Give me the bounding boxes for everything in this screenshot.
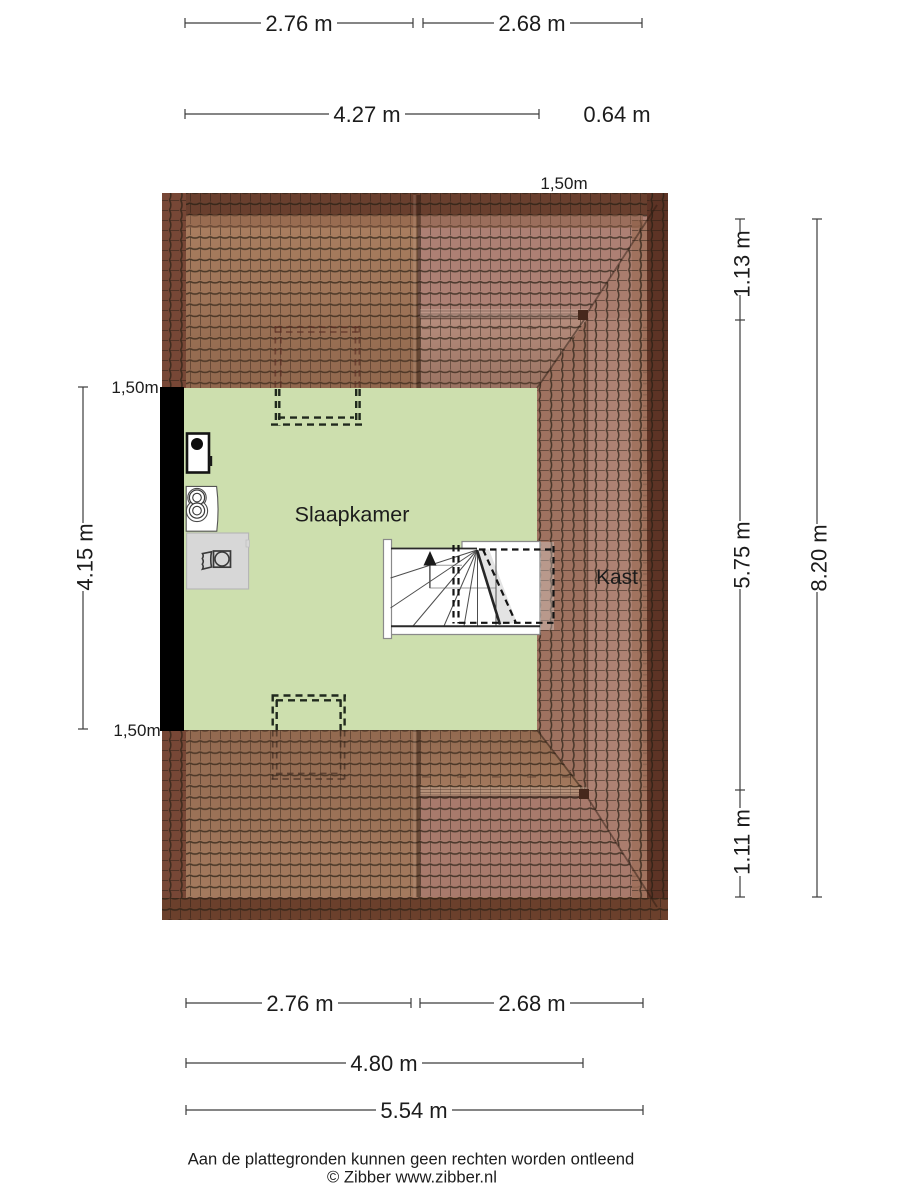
svg-text:8.20 m: 8.20 m	[807, 524, 832, 591]
svg-text:4.27 m: 4.27 m	[333, 102, 400, 127]
svg-text:1,50m: 1,50m	[111, 378, 158, 397]
svg-text:2.68 m: 2.68 m	[498, 11, 565, 36]
svg-text:5.54 m: 5.54 m	[380, 1098, 447, 1123]
svg-text:4.15 m: 4.15 m	[73, 523, 98, 590]
svg-text:1.13 m: 1.13 m	[730, 230, 755, 297]
svg-text:2.68 m: 2.68 m	[498, 991, 565, 1016]
svg-text:4.80 m: 4.80 m	[350, 1051, 417, 1076]
svg-text:1.11 m: 1.11 m	[730, 809, 755, 875]
svg-text:2.76 m: 2.76 m	[265, 11, 332, 36]
svg-text:5.75 m: 5.75 m	[730, 521, 755, 588]
svg-text:Aan de plattegronden kunnen ge: Aan de plattegronden kunnen geen rechten…	[188, 1150, 635, 1169]
svg-text:1,50m: 1,50m	[540, 174, 587, 193]
svg-text:© Zibber www.zibber.nl: © Zibber www.zibber.nl	[327, 1168, 497, 1187]
svg-text:Kast: Kast	[596, 566, 638, 589]
svg-text:1,50m: 1,50m	[113, 721, 160, 740]
svg-text:2.76 m: 2.76 m	[266, 991, 333, 1016]
svg-text:0.64 m: 0.64 m	[583, 102, 650, 127]
svg-text:Slaapkamer: Slaapkamer	[295, 503, 410, 527]
